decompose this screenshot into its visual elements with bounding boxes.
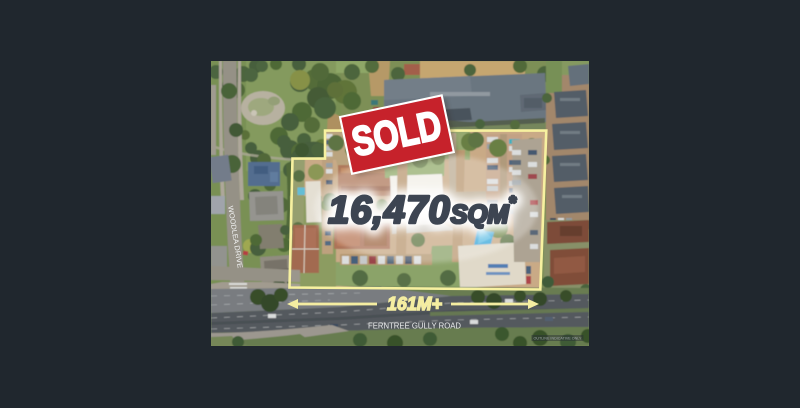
svg-text:161M+: 161M+ — [387, 293, 442, 314]
svg-text:OUTLINE INDICATIVE ONLY: OUTLINE INDICATIVE ONLY — [534, 337, 582, 341]
svg-text:FERNTREE GULLY ROAD: FERNTREE GULLY ROAD — [368, 321, 461, 330]
